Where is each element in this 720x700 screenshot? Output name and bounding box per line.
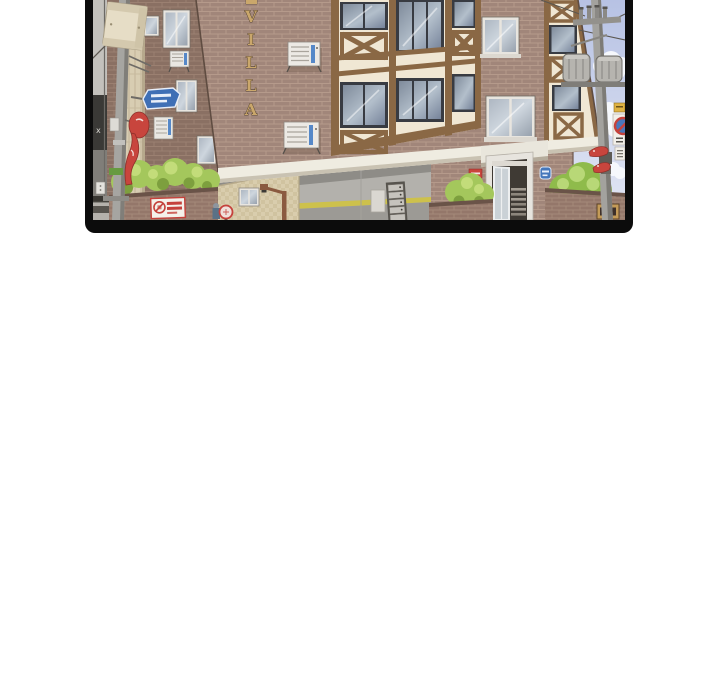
villa-sign-letter: L — [245, 53, 256, 72]
comic-panel: x V I L — [85, 0, 633, 233]
right-fence — [545, 188, 625, 220]
tudor-window — [549, 25, 577, 54]
page-background: x V I L — [0, 0, 720, 700]
villa-sign-letter: L — [245, 76, 256, 95]
villa-sign-letter: A — [244, 100, 258, 119]
tudor-window — [340, 2, 388, 30]
no-stopping-sign — [613, 114, 625, 145]
wall-mark: x — [96, 126, 101, 135]
tudor-window — [552, 85, 581, 111]
tudor-window — [396, 0, 444, 52]
pole-crossarm-low — [103, 196, 129, 201]
ac-unit — [283, 122, 321, 154]
window — [480, 17, 521, 58]
mailbox-unit — [386, 181, 408, 220]
tudor-window — [452, 0, 476, 28]
address-plaque — [540, 167, 551, 179]
villa-sign-letter: V — [244, 7, 258, 26]
street-scene-illustration: x V I L — [93, 0, 625, 220]
ac-unit — [287, 42, 322, 72]
pole-green-band — [109, 168, 123, 175]
round-sign — [220, 206, 233, 221]
pole-label — [110, 118, 119, 131]
no-parking-sign — [151, 197, 186, 218]
villa-sign-letter: I — [247, 30, 254, 49]
tudor-window — [452, 74, 476, 112]
tudor-window — [396, 78, 444, 122]
roadside-signs — [613, 103, 625, 160]
villa-sign-cut-letter — [246, 0, 257, 4]
villa-sign: V I L L A — [244, 0, 258, 119]
window — [239, 188, 259, 206]
tudor-window — [340, 82, 388, 128]
intercom-box — [96, 182, 105, 194]
pole-transformer-box — [102, 2, 147, 51]
garage-recess-panel — [371, 190, 385, 212]
ac-unit — [154, 117, 173, 139]
info-sign — [615, 147, 625, 160]
entrance-door — [494, 167, 509, 220]
window — [484, 96, 537, 142]
window — [163, 10, 190, 48]
